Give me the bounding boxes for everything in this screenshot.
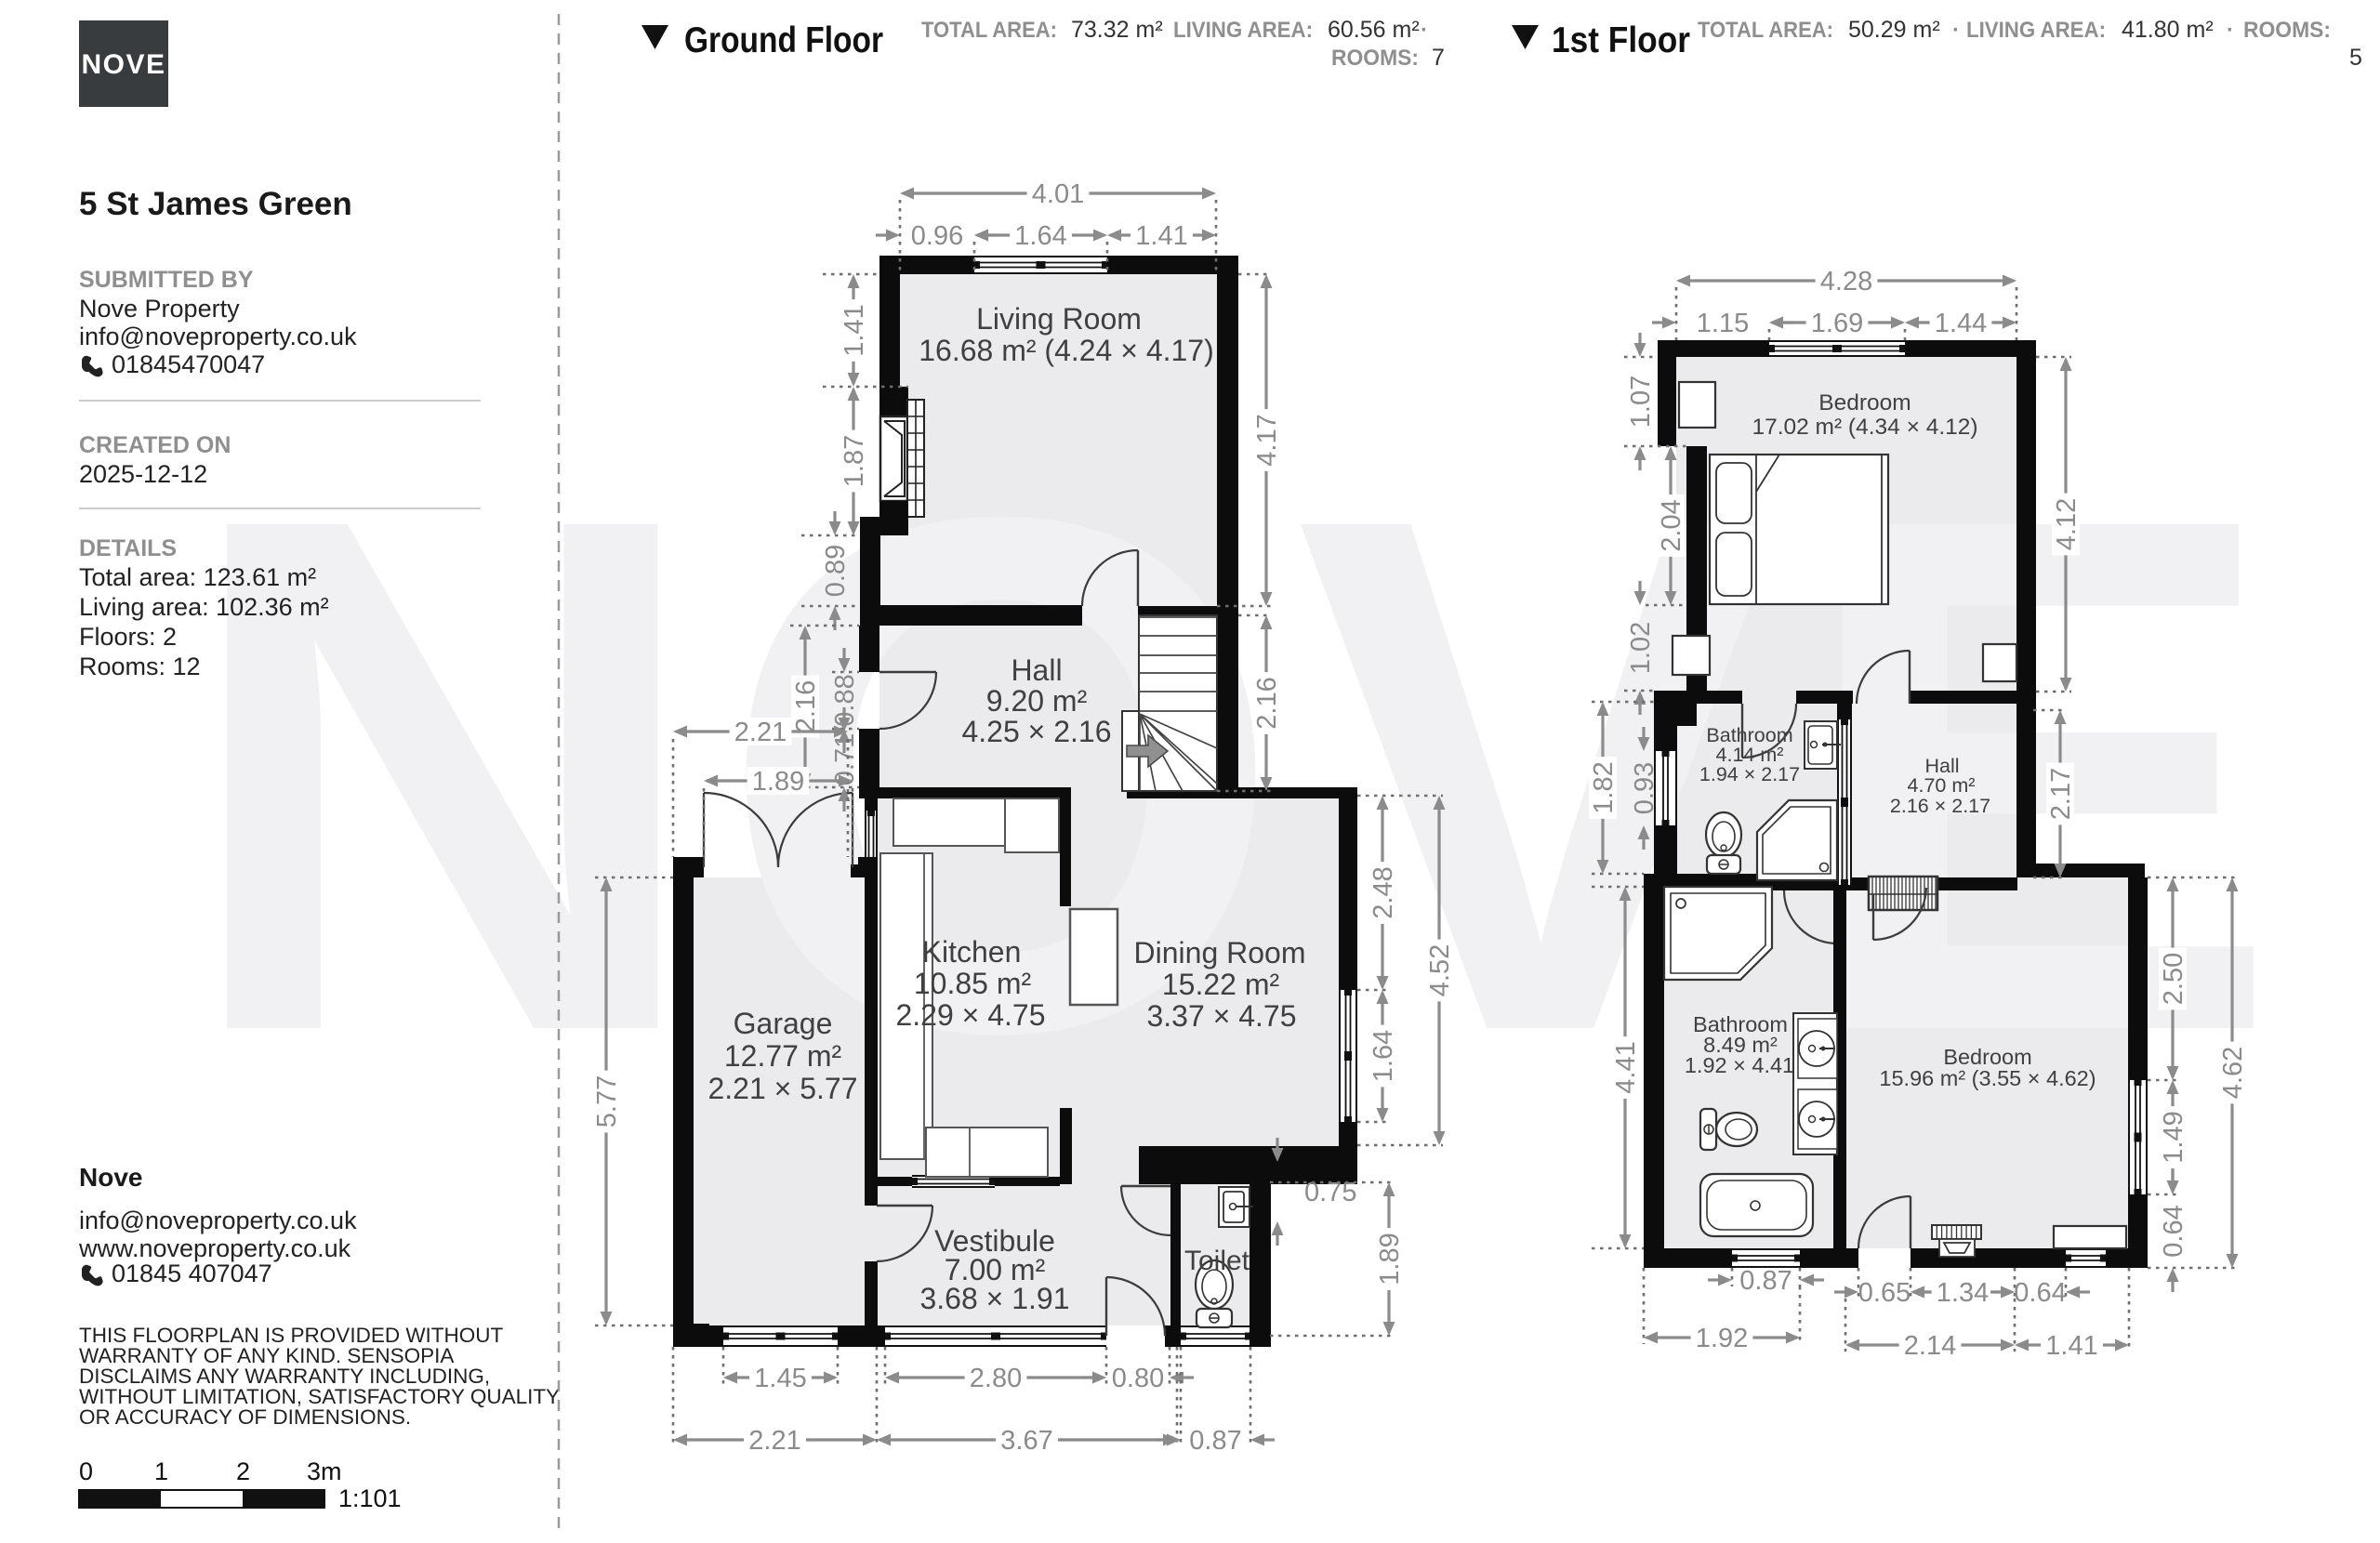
svg-text:4.01: 4.01	[1032, 179, 1084, 209]
svg-text:Living Room: Living Room	[976, 302, 1142, 336]
svg-text:01845 407047: 01845 407047	[112, 1259, 272, 1287]
svg-text:1.87: 1.87	[840, 435, 869, 487]
svg-text:1.15: 1.15	[1697, 309, 1749, 338]
svg-text:1.41: 1.41	[840, 304, 869, 356]
svg-text:1.64: 1.64	[1368, 1030, 1398, 1082]
svg-text:1.94 × 2.17: 1.94 × 2.17	[1699, 763, 1800, 785]
svg-text:0.87: 0.87	[1739, 1266, 1792, 1296]
svg-text:4.52: 4.52	[1425, 944, 1455, 996]
svg-text:9.20 m²: 9.20 m²	[986, 684, 1088, 718]
svg-text:info@noveproperty.co.uk: info@noveproperty.co.uk	[79, 323, 357, 350]
svg-text:10.85 m²: 10.85 m²	[914, 967, 1032, 1000]
svg-text:60.56 m²: 60.56 m²	[1328, 17, 1420, 43]
svg-text:1.69: 1.69	[1811, 309, 1863, 338]
svg-text:5.77: 5.77	[592, 1075, 622, 1128]
svg-text:·: ·	[2227, 18, 2234, 43]
svg-text:2.16 × 2.17: 2.16 × 2.17	[1890, 795, 1990, 817]
svg-text:LIVING AREA:: LIVING AREA:	[1173, 18, 1313, 43]
svg-text:4.28: 4.28	[1820, 267, 1872, 297]
svg-text:SUBMITTED BY: SUBMITTED BY	[79, 267, 254, 293]
svg-text:16.68 m² (4.24 × 4.17): 16.68 m² (4.24 × 4.17)	[919, 334, 1214, 367]
svg-text:4.25 × 2.16: 4.25 × 2.16	[961, 715, 1111, 748]
svg-text:2.21: 2.21	[748, 1426, 800, 1456]
svg-text:0: 0	[79, 1457, 93, 1485]
svg-text:1.92: 1.92	[1696, 1324, 1748, 1353]
svg-text:4.62: 4.62	[2218, 1047, 2248, 1099]
svg-text:Ground Floor: Ground Floor	[684, 20, 883, 60]
svg-text:1.45: 1.45	[754, 1364, 806, 1393]
svg-text:LIVING AREA:: LIVING AREA:	[1966, 18, 2106, 43]
svg-text:0.64: 0.64	[2159, 1205, 2188, 1257]
svg-text:1.82: 1.82	[1589, 761, 1619, 813]
svg-text:4.17: 4.17	[1252, 414, 1282, 466]
svg-text:Nove: Nove	[79, 1163, 142, 1192]
svg-text:Garage: Garage	[734, 1007, 833, 1040]
svg-text:CREATED ON: CREATED ON	[79, 432, 231, 458]
svg-text:1.02: 1.02	[1626, 622, 1656, 674]
svg-text:2.21: 2.21	[734, 718, 787, 747]
svg-text:73.32 m²: 73.32 m²	[1071, 17, 1163, 43]
svg-text:3.37 × 4.75: 3.37 × 4.75	[1146, 999, 1296, 1033]
svg-text:1:101: 1:101	[338, 1484, 402, 1512]
svg-text:15.96 m² (3.55 × 4.62): 15.96 m² (3.55 × 4.62)	[1879, 1066, 2096, 1090]
svg-text:2.16: 2.16	[1252, 677, 1282, 729]
svg-text:4.41: 4.41	[1611, 1041, 1641, 1093]
svg-text:Nove Property: Nove Property	[79, 295, 240, 323]
svg-text:2.29 × 4.75: 2.29 × 4.75	[895, 998, 1045, 1032]
svg-text:0.89: 0.89	[821, 545, 851, 597]
svg-text:3m: 3m	[307, 1457, 342, 1485]
svg-text:info@noveproperty.co.uk: info@noveproperty.co.uk	[79, 1207, 357, 1234]
svg-text:Floors: 2: Floors: 2	[79, 623, 177, 651]
svg-text:NOVE: NOVE	[81, 49, 165, 80]
svg-text:3.68 × 1.91: 3.68 × 1.91	[919, 1282, 1069, 1315]
svg-text:OR ACCURACY OF DIMENSIONS.: OR ACCURACY OF DIMENSIONS.	[79, 1405, 411, 1429]
svg-text:15.22 m²: 15.22 m²	[1162, 968, 1280, 1001]
svg-text:4.12: 4.12	[2052, 498, 2082, 550]
svg-text:0.64: 0.64	[2014, 1278, 2066, 1308]
svg-text:01845470047: 01845470047	[112, 350, 265, 378]
svg-text:1.92 × 4.41: 1.92 × 4.41	[1685, 1053, 1794, 1077]
svg-text:17.02 m² (4.34 × 4.12): 17.02 m² (4.34 × 4.12)	[1752, 415, 1977, 440]
svg-text:0.80: 0.80	[1112, 1364, 1164, 1393]
svg-text:ROOMS:: ROOMS:	[2243, 18, 2331, 43]
svg-text:1.44: 1.44	[1935, 309, 1987, 338]
svg-text:·: ·	[1952, 18, 1960, 43]
svg-text:2.14: 2.14	[1904, 1331, 1956, 1361]
svg-text:2.80: 2.80	[970, 1364, 1022, 1393]
svg-text:1.89: 1.89	[1375, 1233, 1405, 1285]
svg-text:Rooms: 12: Rooms: 12	[79, 653, 201, 680]
svg-text:12.77 m²: 12.77 m²	[724, 1039, 842, 1073]
svg-text:2025-12-12: 2025-12-12	[79, 460, 207, 488]
svg-text:2.17: 2.17	[2046, 768, 2076, 820]
svg-text:Bedroom: Bedroom	[1818, 390, 1911, 415]
svg-text:0.87: 0.87	[1189, 1426, 1241, 1456]
svg-text:1: 1	[154, 1457, 168, 1485]
svg-text:www.noveproperty.co.uk: www.noveproperty.co.uk	[78, 1234, 351, 1262]
svg-text:2.50: 2.50	[2159, 953, 2188, 1005]
svg-text:·: ·	[1156, 18, 1163, 43]
svg-text:3.67: 3.67	[1000, 1426, 1052, 1456]
svg-text:0.96: 0.96	[911, 221, 963, 251]
svg-text:1.34: 1.34	[1937, 1278, 1989, 1308]
svg-text:Dining Room: Dining Room	[1134, 936, 1306, 969]
svg-text:DETAILS: DETAILS	[79, 535, 177, 561]
svg-text:1.49: 1.49	[2159, 1111, 2188, 1163]
svg-text:TOTAL AREA:: TOTAL AREA:	[1698, 18, 1833, 43]
svg-text:50.29 m²: 50.29 m²	[1848, 17, 1940, 43]
svg-text:Kitchen: Kitchen	[922, 935, 1022, 969]
svg-text:Toilet: Toilet	[1184, 1246, 1250, 1276]
svg-text:41.80 m²: 41.80 m²	[2122, 17, 2214, 43]
svg-text:0.65: 0.65	[1858, 1278, 1911, 1308]
svg-text:5: 5	[2349, 45, 2362, 71]
svg-text:2: 2	[236, 1457, 250, 1485]
svg-text:·: ·	[1421, 18, 1428, 43]
svg-text:1.89: 1.89	[752, 767, 804, 797]
svg-text:2.04: 2.04	[1657, 499, 1686, 551]
svg-text:1.41: 1.41	[2045, 1331, 2097, 1361]
svg-text:Total area: 123.61 m²: Total area: 123.61 m²	[79, 563, 316, 591]
svg-text:TOTAL AREA:: TOTAL AREA:	[921, 18, 1057, 43]
svg-text:2.48: 2.48	[1368, 866, 1398, 918]
svg-text:1.64: 1.64	[1014, 221, 1066, 251]
svg-text:1st Floor: 1st Floor	[1552, 20, 1690, 60]
svg-text:5 St James Green: 5 St James Green	[79, 186, 352, 222]
svg-text:0.93: 0.93	[1630, 762, 1659, 814]
svg-text:4.70 m²: 4.70 m²	[1908, 774, 1976, 797]
svg-text:1.07: 1.07	[1626, 376, 1656, 428]
svg-text:2.21 × 5.77: 2.21 × 5.77	[707, 1072, 857, 1105]
svg-text:7: 7	[1432, 45, 1445, 71]
svg-text:Living area: 102.36 m²: Living area: 102.36 m²	[79, 593, 329, 621]
svg-text:2.16: 2.16	[791, 680, 821, 732]
svg-text:ROOMS:: ROOMS:	[1331, 46, 1419, 71]
svg-text:1.41: 1.41	[1135, 221, 1187, 251]
svg-text:Hall: Hall	[1011, 653, 1062, 687]
